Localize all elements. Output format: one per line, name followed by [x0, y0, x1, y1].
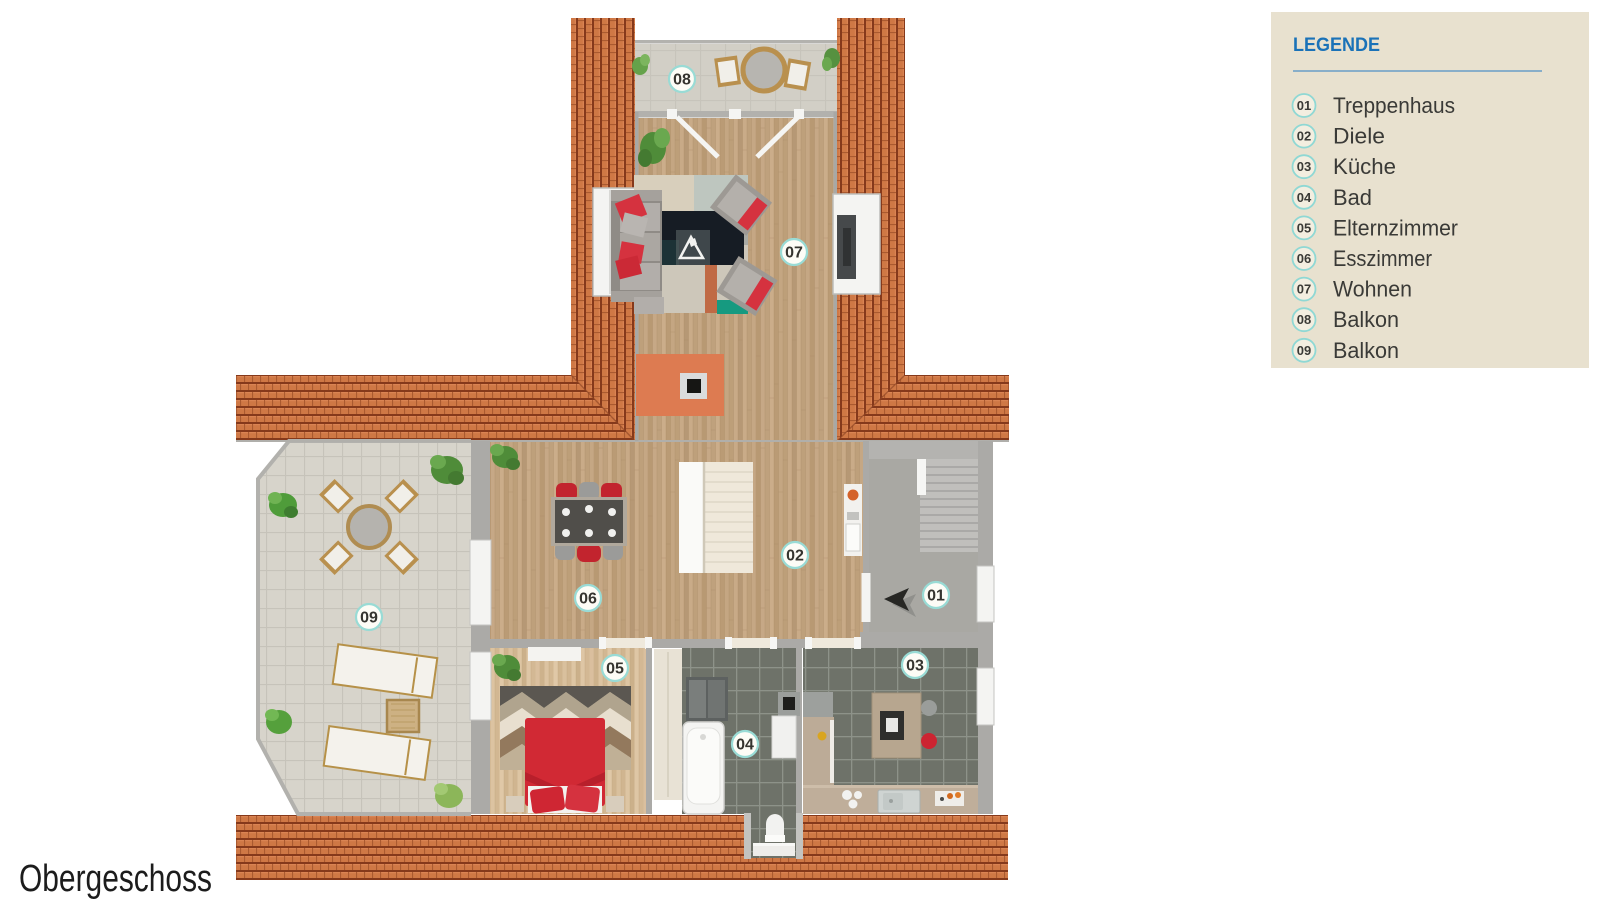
svg-text:LEGENDE: LEGENDE — [1293, 34, 1380, 56]
svg-text:04: 04 — [736, 737, 754, 754]
svg-text:07: 07 — [785, 245, 803, 262]
svg-text:Diele: Diele — [1333, 124, 1385, 149]
svg-text:Bad: Bad — [1333, 185, 1372, 210]
svg-text:Esszimmer: Esszimmer — [1333, 246, 1432, 271]
svg-text:09: 09 — [360, 610, 378, 627]
svg-text:Obergeschoss: Obergeschoss — [19, 858, 212, 900]
svg-text:07: 07 — [1297, 282, 1311, 297]
svg-text:06: 06 — [1297, 251, 1311, 266]
svg-text:02: 02 — [786, 548, 804, 565]
svg-text:03: 03 — [1297, 159, 1311, 174]
svg-text:Elternzimmer: Elternzimmer — [1333, 215, 1458, 240]
svg-text:Balkon: Balkon — [1333, 338, 1399, 363]
svg-text:01: 01 — [1297, 98, 1311, 113]
svg-text:01: 01 — [927, 588, 945, 605]
svg-text:03: 03 — [906, 658, 924, 675]
svg-text:05: 05 — [606, 661, 624, 678]
svg-text:Treppenhaus: Treppenhaus — [1333, 93, 1455, 118]
svg-text:Wohnen: Wohnen — [1333, 277, 1412, 302]
svg-text:09: 09 — [1297, 343, 1311, 358]
svg-text:06: 06 — [579, 591, 597, 608]
svg-text:Balkon: Balkon — [1333, 307, 1399, 332]
svg-text:08: 08 — [673, 72, 691, 89]
svg-text:Küche: Küche — [1333, 154, 1396, 179]
svg-text:02: 02 — [1297, 129, 1311, 144]
svg-text:08: 08 — [1297, 312, 1311, 327]
svg-text:04: 04 — [1297, 190, 1312, 205]
svg-text:05: 05 — [1297, 220, 1311, 235]
